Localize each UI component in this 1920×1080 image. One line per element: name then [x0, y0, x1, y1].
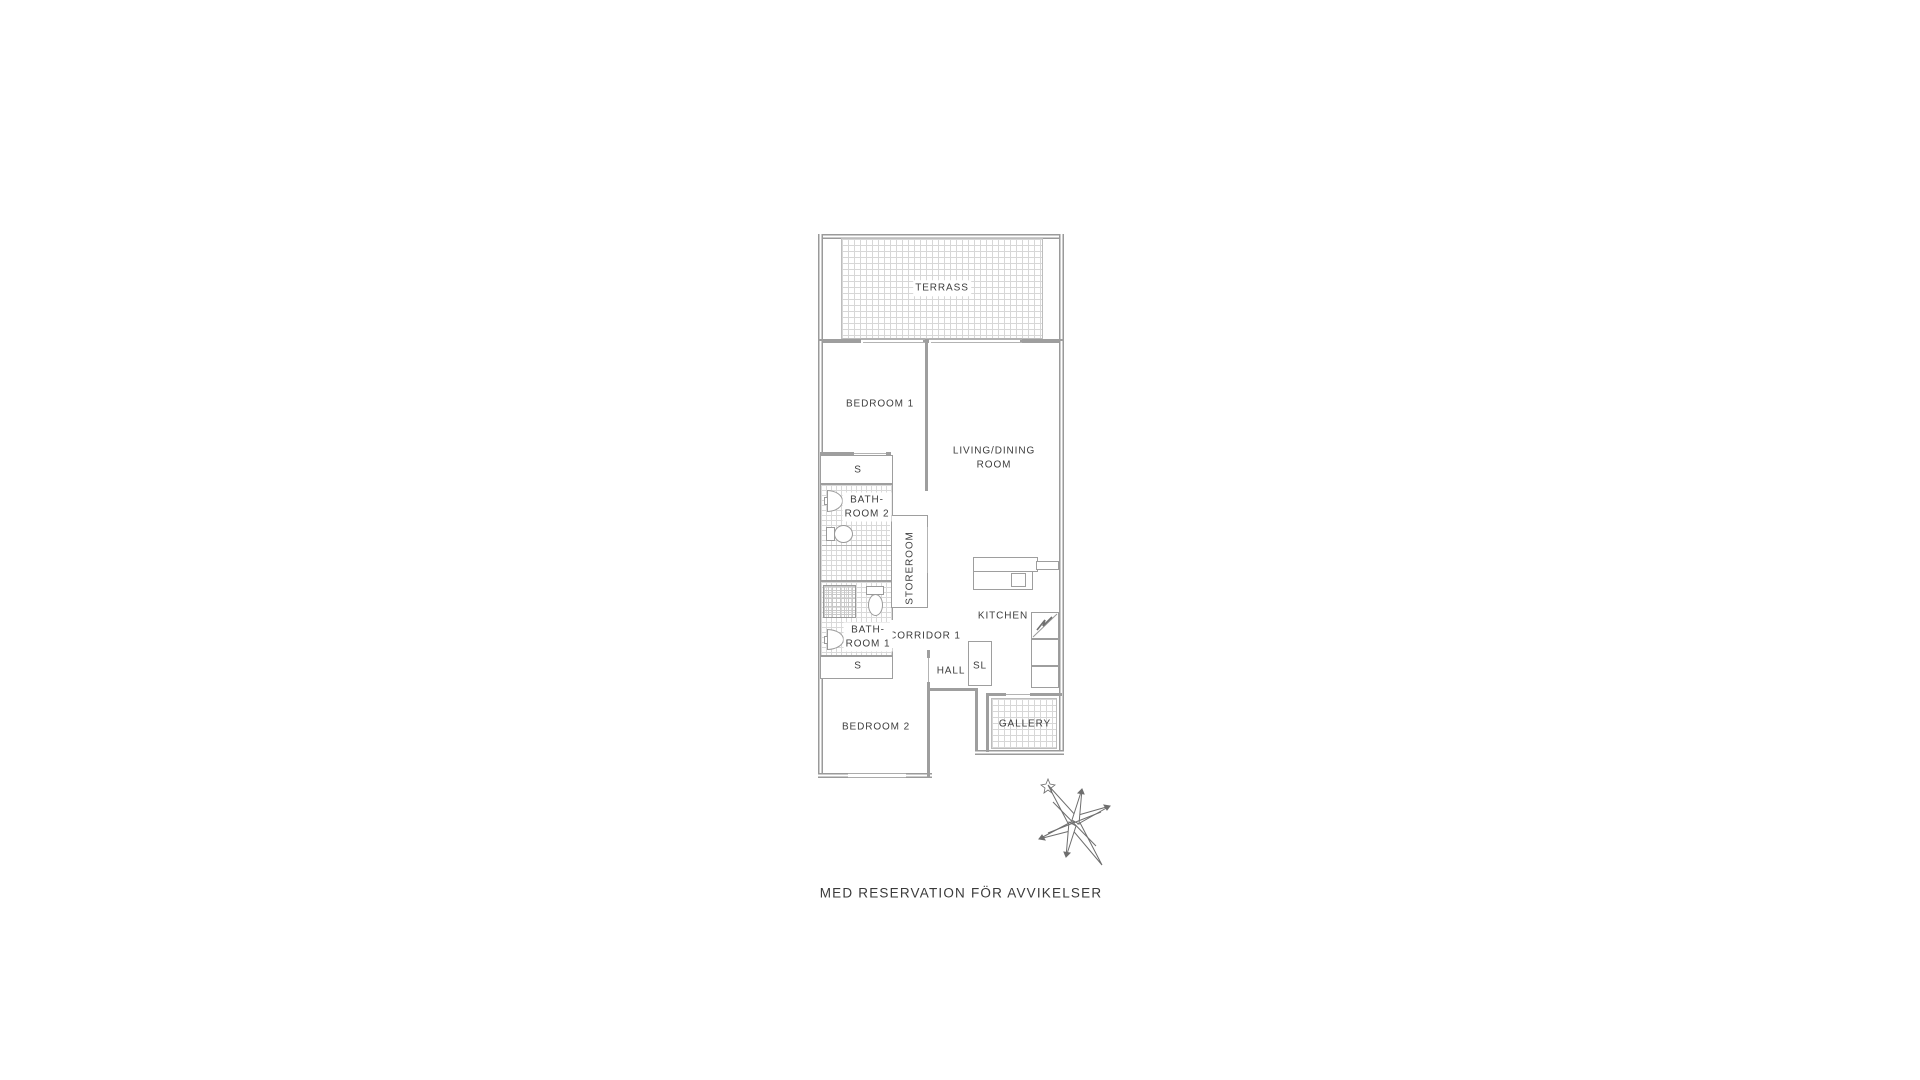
wall: [1020, 339, 1064, 343]
room-label-storeroom: STOREROOM: [902, 529, 918, 606]
wall: [986, 693, 989, 752]
closet-label-sl: SL: [971, 658, 989, 674]
window: [848, 773, 906, 778]
room-label-corridor1: CORRIDOR 1: [887, 628, 963, 644]
wall: [975, 688, 978, 755]
wall: [818, 234, 823, 343]
room-label-living: LIVING/DINING ROOM: [951, 444, 1037, 473]
shower-partition: [822, 545, 891, 546]
room-label-bathroom2: BATH- ROOM 2: [843, 493, 892, 522]
floor-plan: TERRASS BEDROOM 1 LIVING/DINING ROOM S B…: [0, 0, 1920, 1080]
tall-cabinet: [1031, 639, 1059, 666]
wall: [927, 688, 930, 778]
floor-plan-page: TERRASS BEDROOM 1 LIVING/DINING ROOM S B…: [0, 0, 1920, 1080]
electrical-panel-icon: [1031, 612, 1059, 639]
sliding-door: [931, 342, 1022, 344]
door-threshold: [854, 453, 886, 454]
door-threshold: [928, 658, 929, 682]
room-label-hall: HALL: [935, 663, 968, 679]
closet-label-s-top: S: [852, 462, 864, 478]
room-label-bathroom1: BATH- ROOM 1: [844, 623, 893, 652]
wall: [818, 339, 861, 343]
wall: [925, 343, 928, 491]
wall: [1059, 234, 1064, 343]
toilet-icon: [863, 586, 887, 617]
wall: [927, 688, 978, 691]
sliding-door: [863, 342, 925, 344]
room-label-terrace: TERRASS: [913, 280, 971, 296]
tall-cabinet: [1031, 666, 1059, 688]
room-label-gallery: GALLERY: [997, 716, 1053, 732]
compass-north-icon: [1033, 776, 1115, 868]
kitchen-counter: [1036, 561, 1059, 570]
room-label-bedroom1: BEDROOM 1: [844, 396, 916, 412]
toilet-icon: [826, 524, 854, 544]
sliding-door: [861, 338, 925, 340]
door-threshold: [927, 527, 928, 573]
hob-icon: [1011, 573, 1026, 587]
shower-icon: [823, 585, 856, 618]
door-threshold: [1006, 694, 1030, 695]
disclaimer-text: MED RESERVATION FÖR AVVIKELSER: [820, 886, 1103, 901]
room-label-kitchen: KITCHEN: [976, 608, 1030, 624]
closet-label-s-bottom: S: [852, 658, 864, 674]
room-label-bedroom2: BEDROOM 2: [840, 719, 912, 735]
sliding-door: [929, 338, 1022, 340]
